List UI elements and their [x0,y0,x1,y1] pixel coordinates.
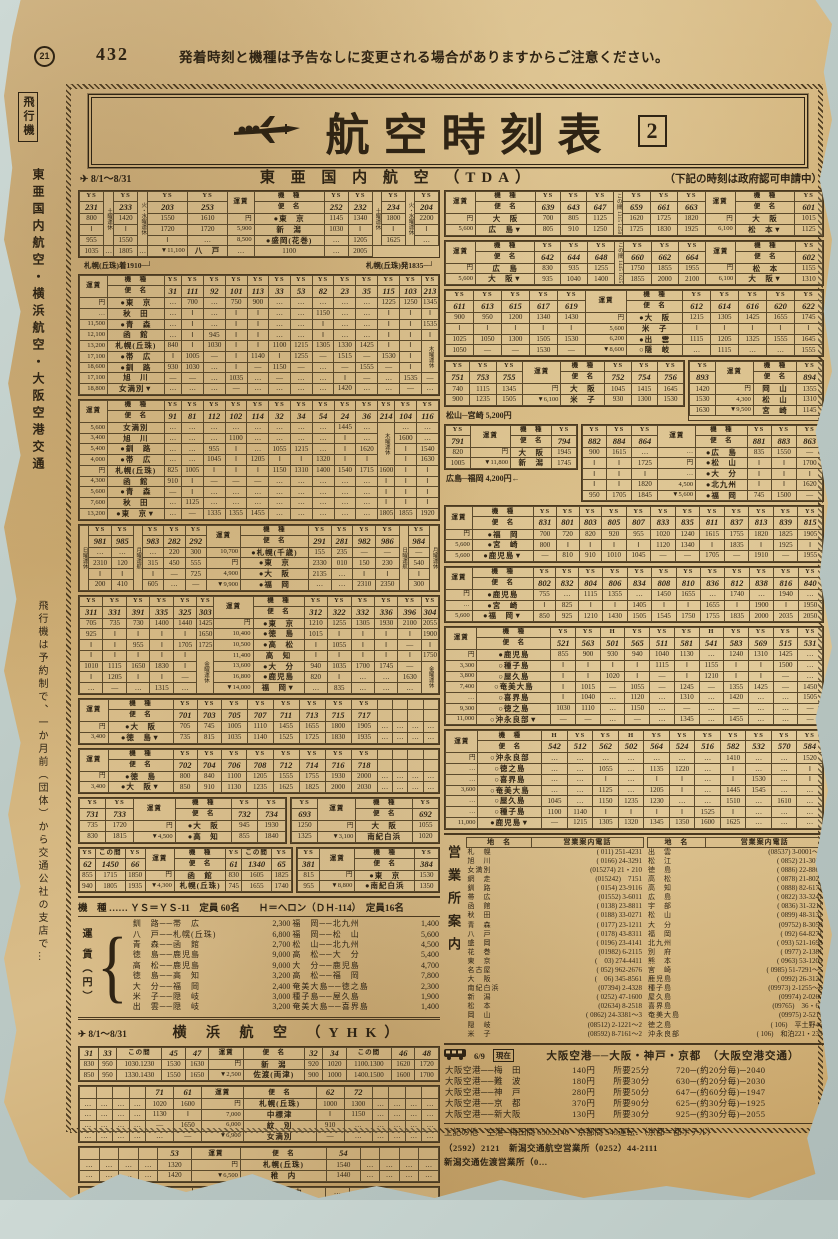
grid-cell: 815 [298,870,320,881]
grid-cell: 函 館 [108,476,164,487]
grid-cell: … [600,703,625,714]
grid-cell: 金曜運休 [197,650,214,693]
grid-cell: 運賃 [446,192,476,214]
grid-cell: 381 [298,858,320,870]
grid-cell: 出 雲──隠 岐 [132,1002,261,1012]
grid-cell: ‖ [749,540,774,551]
grid-cell: … [600,693,625,704]
fare-brace: { [97,930,128,1002]
grid-cell: 304 [422,606,439,618]
grid-cell: ●徳 島 [108,771,173,782]
grid-cell: この間 [95,848,125,858]
grid-cell: 808 [652,577,676,589]
grid-cell: YS [567,731,593,741]
grid-cell: ‖ [674,660,699,671]
grid-cell: 4,900 [206,569,240,580]
grid-cell: 825 [556,600,579,611]
grid-cell: ▼8,800 [320,881,355,892]
grid-cell: YS [739,291,767,301]
grid-cell: 531 [798,638,823,650]
grid-cell: ▼2,500 [209,1070,244,1081]
grid-cell: 813 [749,517,774,529]
grid-cell: 700 [534,529,557,540]
grid-cell: 13,600 [214,661,253,672]
page-corner-badge: 21 [34,46,55,67]
grid-cell: — [534,551,557,562]
tda-airline-name: 東 亜 国 内 航 空 （TDA） [145,166,650,187]
grid-cell: 女満別 [108,422,164,433]
grid-cell: 女満別 [243,1131,316,1142]
grid-cell: … [334,330,356,341]
grid-cell: 1355 [603,589,627,600]
grid-cell: 850 [80,1070,99,1081]
grid-cell: 高 松──大 分 [291,950,409,960]
grid-cell: 1540 [327,1160,360,1171]
grid-cell: 1940 [774,589,798,600]
grid-cell: 運賃 [585,291,626,313]
grid-cell: ( 0963) 53-1205 [706,957,824,966]
grid-cell: 旭 川 [108,373,165,384]
grid-cell: … [378,373,400,384]
grid-cell: 2330 [308,558,331,569]
grid-cell: 1855 [395,508,417,519]
grid-cell: 648 [587,251,614,263]
grid-cell: 2100 [678,274,705,285]
grid-cell: 1015 [576,682,601,693]
grid-cell: ( 011) 251-4231 [532,847,643,857]
grid-cell: ‖ [551,682,576,693]
grid-cell: ‖ [417,465,439,476]
grid-cell: 大 分 [647,921,706,930]
grid-cell: 1100 [542,807,568,818]
grid-cell: 1120 [625,693,650,704]
grid-cell: (07394) 2-4328 [532,984,643,993]
grid-cell: … [129,1099,146,1110]
grid-cell: 1020 [323,1059,346,1070]
grid-cell: YS [417,400,439,410]
grid-cell: YS [795,241,822,251]
grid-cell [423,709,438,721]
grid-cell: … [312,362,334,373]
grid-cell: 7,600 [80,498,108,509]
timetable-grid: YSYSYS運賃機 種YSYSYS751753755便 名75275475674… [445,361,684,406]
grid-cell: 1625 [720,817,746,828]
grid-cell: 820 [579,529,602,540]
grid-cell: YS [724,628,749,638]
grid-cell: 稚 内 [240,1171,326,1182]
grid-cell: 910 [561,224,586,235]
grid-cell: 410 [112,579,133,590]
grid-cell: 1845 [632,490,658,501]
grid-cell: 701 [173,709,197,721]
grid-cell: ( 0836) 31-3211 [706,902,824,911]
grid-cell: 旭 川 [467,857,532,866]
grid-cell: … [398,683,422,694]
grid-cell: 2050 [798,611,822,622]
grid-cell: … [372,1099,389,1110]
grid-cell: YS [529,291,557,301]
grid-cell: … [80,1099,97,1110]
grid-cell: … [618,764,644,775]
grid-cell: … [771,817,797,828]
grid-cell: YS [89,525,112,535]
grid-cell: YS [312,276,334,286]
grid-cell: 900 [247,298,269,309]
grid-cell: 280円 [571,1087,612,1098]
grid-cell: 運賃 [446,731,478,753]
grid-cell: ‖ [378,308,400,319]
grid-cell: … [269,476,291,487]
grid-cell: YS [226,848,242,858]
grid-cell: ●大 阪▼ [108,782,173,793]
grid-cell: 1,900 [410,992,440,1002]
grid-cell: 751 [446,372,470,384]
grid-cell: ‖ [501,323,529,334]
grid-cell: YS [334,400,356,410]
grid-cell: YS [400,276,422,286]
grid-cell: 1155 [699,660,724,671]
grid-cell: … [187,235,227,246]
grid-cell: ●札幌(千歳) [241,547,308,558]
grid-cell: YS [80,799,106,809]
grid-cell: 円 [705,214,735,225]
grid-cell: … [203,373,225,384]
grid-cell: ●東 京▼ [108,508,164,519]
grid-cell: ●釧 路 [108,362,165,373]
grid-cell: 705 [221,709,247,721]
grid-cell: 1530 [162,1059,185,1070]
grid-cell: ‖ [603,600,627,611]
grid-cell: 883 [771,435,797,447]
grid-cell: (09974) 2-0260 [706,993,824,1002]
grid-cell: YS [290,276,312,286]
grid-cell: ‖ [80,672,103,683]
grid-cell: 910 [579,551,602,562]
grid-cell: ‖ [334,433,356,444]
grid-cell: — [551,714,576,725]
grid-cell: … [225,498,247,509]
grid-cell: — [773,671,798,682]
grid-cell: ‖ [181,487,203,498]
grid-cell: ( 03) 274-4411 [532,957,643,966]
grid-cell: 1030 [324,224,348,235]
grid-cell: 1,400 [410,1002,440,1012]
grid-cell: 692 [412,809,438,821]
grid-cell: ‖ [395,498,417,509]
grid-cell: 986 [376,535,399,547]
grid-cell: 1450 [798,682,823,693]
grid-cell: … [356,487,378,498]
grid-cell: 1550 [148,214,188,225]
grid-cell: 便 名 [511,435,552,447]
grid-cell: ‖ [304,640,327,651]
grid-cell: ‖ [247,308,269,319]
grid-cell: … [650,703,675,714]
grid-cell: YS [676,567,700,577]
grid-cell: YS [273,749,299,759]
grid-cell: … [695,774,721,785]
grid-cell: 1905 [351,722,377,733]
grid-cell: ‖ [395,476,417,487]
grid-cell: ‖ [89,569,112,580]
grid-cell: 1420 [724,693,749,704]
grid-cell: YS [773,628,798,638]
grid-cell: ‖ [422,640,439,651]
grid-cell: ( 0154) 23-9116 [532,884,643,893]
grid-cell: ‖ [334,455,356,466]
grid-cell: 512 [567,741,593,753]
grid-cell: 5,600 [446,274,476,285]
grid-cell: 1315 [150,683,173,694]
grid-cell: … [269,487,291,498]
grid-cell: 1740 [725,589,749,600]
grid-cell: 便 名 [175,809,231,821]
grid-cell [399,1148,419,1160]
grid-cell: 1835 [724,540,749,551]
grid-cell: 1625 [381,235,405,246]
grid-cell: 130円 [571,1109,612,1120]
grid-cell: 6,000 [202,1120,243,1131]
grid-cell: 1300 [344,1099,372,1110]
grid-cell: YS [678,241,705,251]
grid-cell: 4,700 [410,961,440,971]
grid-cell: YS [308,525,331,535]
grid-cell: … [312,498,334,509]
grid-cell: — [724,703,749,714]
grid-cell: 720─(約20分毎)─2040 [675,1065,824,1076]
grid-cell: 金曜運休 [422,661,439,693]
grid-cell: ○屋久島 [477,671,551,682]
grid-cell: 36 [356,410,378,422]
grid-cell: … [247,444,269,455]
grid-cell: ○種子島 [478,807,542,818]
grid-cell: ‖ [700,540,725,551]
grid-cell: 円 [715,384,753,395]
grid-cell: 1035 [221,732,247,743]
grid-cell: ‖ [150,650,173,661]
grid-cell: 運賃 [446,507,473,529]
grid-cell: 805 [535,224,560,235]
grid-cell: 円 [446,263,476,274]
grid-cell: 830 [226,870,242,881]
grid-cell: 便 名 [736,251,795,263]
grid-cell: 1340 [529,313,557,324]
grid-cell: … [181,422,203,433]
grid-cell: 盛 岡 [467,939,532,948]
grid-cell: YS [225,276,247,286]
grid-cell: … [567,785,593,796]
grid-cell: YS [299,749,325,759]
grid-cell: YS [142,525,163,535]
grid-cell: ‖ [247,341,269,352]
grid-cell: YS [625,628,650,638]
grid-cell: … [290,373,312,384]
grid-cell: 日曜運休 [80,525,89,590]
grid-cell: 旭 川 [108,433,164,444]
grid-cell: YS [446,291,474,301]
grid-cell: ‖ [126,650,149,661]
grid-cell: … [797,796,823,807]
grid-cell: 機 種 [472,567,533,577]
grid-cell: 830 [80,1059,99,1070]
grid-cell: … [203,422,225,433]
timetable-content: YS土曜運休YS火・水曜運休YSYS運賃機 種YSYS土曜運休YS火・水曜運休Y… [78,190,824,1239]
grid-cell: … [419,1171,439,1182]
airport-bus-footnote: 上記の他 空港─梅田間 650.2140 京都間 545運転．（京都＝都ホテル） [444,1123,824,1140]
grid-cell: 火・水曜運休 [138,192,148,246]
grid-cell: 1750 [422,650,439,661]
grid-cell: 707 [247,709,273,721]
grid-cell: 4,300 [715,394,753,405]
grid-cell: 1135 [644,764,670,775]
grid-cell: 1125 [181,498,203,509]
grid-cell: 34 [323,1047,346,1059]
grid-cell: 396 [398,606,422,618]
grid-cell: 834 [627,577,651,589]
office-directory-label: 営業所案内 [444,837,463,1039]
grid-cell: 1300 [501,334,529,345]
grid-cell: 615 [501,301,529,313]
grid-cell: … [312,298,334,309]
grid-cell: 函 館 [108,330,165,341]
grid-cell: … [96,1110,113,1121]
grid-cell: ●出 雲 [627,334,683,345]
grid-cell: 1355 [724,682,749,693]
grid-cell: YS [325,749,351,759]
grid-cell: 1530 [557,334,585,345]
grid-cell: 福 岡──松 山 [291,930,409,940]
grid-cell: … [312,476,334,487]
grid-cell: 宇 部 [647,902,706,911]
grid-cell: … [375,683,398,694]
grid-cell: 1820 [632,479,658,490]
grid-cell: 1550 [162,1070,185,1081]
grid-cell: ‖ [576,671,601,682]
grid-cell: ‖ [644,774,670,785]
grid-cell: ‖ [606,469,632,480]
grid-cell: 円 [318,821,356,832]
timetable-grid: 3133この間4547運賃便 名3234この間46488309501030.12… [79,1047,439,1082]
grid-cell: … [773,703,798,714]
grid-cell: 1700 [797,458,823,469]
grid-cell: … [739,345,767,356]
grid-cell: ‖ [400,330,422,341]
grid-cell: 850 [533,611,556,622]
grid-cell: 1850 [125,870,145,881]
grid-cell: ‖ [269,351,291,362]
row-yonago-okayama: YSYSYS運賃機 種YSYSYS751753755便 名75275475674… [444,360,824,424]
grid-cell: YS [126,596,149,606]
grid-cell: ●宮 崎 [472,540,533,551]
grid-cell: 1720 [187,224,227,235]
grid-cell: ( 0977) 2-1381 [706,948,824,957]
grid-cell: 松 本▼ [735,224,795,235]
grid-cell: 756 [657,372,683,384]
grid-cell: 281 [331,535,352,547]
grid-cell: 便 名 [735,202,795,214]
grid-cell: 釧 路──帯 広 [132,919,261,929]
grid-cell: … [650,693,675,704]
grid-cell: ‖ [225,455,247,466]
grid-cell: 570 [771,741,797,753]
grid-cell: YS [578,567,602,577]
grid-cell: 66 [125,858,145,870]
grid-cell: … [372,1131,389,1142]
grid-cell: YS [593,731,619,741]
tda-table-osaka-izumo-oki: YSYSYSYSYS運賃機 種YSYSYSYSYS611613615617619… [444,289,824,357]
grid-cell: … [113,1120,130,1131]
grid-cell: YS [576,628,601,638]
grid-cell: 1910 [749,551,774,562]
volume-badge: 2 [638,115,667,147]
grid-cell: YS [496,362,522,372]
grid-cell: 運賃 [145,848,174,870]
grid-cell: — [773,551,798,562]
grid-cell: 1505 [798,693,823,704]
grid-cell: … [600,714,625,725]
grid-cell: 1150 [625,703,650,714]
grid-cell: ( 0886) 22-8866 [706,866,824,875]
grid-cell: 45 [162,1047,185,1059]
grid-cell: ‖ [669,785,695,796]
grid-cell: ‖ [269,455,291,466]
grid-cell: H [699,628,724,638]
grid-cell: 円 [206,558,240,569]
grid-cell: 1030 [203,341,225,352]
grid-cell: ‖ [225,444,247,455]
grid-cell: … [142,547,163,558]
grid-cell: … [203,384,225,395]
grid-cell: 円 [80,298,108,309]
timetable-grid: 釧 路──帯 広2,300福 岡──北九州1,400八 戸──札幌(丘珠)6,8… [132,919,440,1013]
grid-cell: YS [606,425,632,435]
grid-cell: ‖ [378,476,395,487]
grid-cell: 便 名 [254,202,324,214]
grid-cell: ●帯 広 [108,351,165,362]
grid-cell: 662 [651,251,678,263]
grid-cell: YS [535,192,560,202]
grid-cell: 541 [699,638,724,650]
grid-cell: YS [669,731,695,741]
grid-cell: ( 093) 521-1698 [706,939,824,948]
grid-cell: — [185,579,206,590]
grid-cell: 円 [191,1160,240,1171]
grid-cell: 54 [327,1148,360,1160]
grid-cell: 便 名 [108,709,173,721]
grid-cell: 宮 崎 [647,966,706,975]
grid-cell: ●鹿児島 [477,650,551,661]
grid-cell: 1530 [415,870,439,881]
grid-cell: 1030.1230 [117,1059,162,1070]
grid-cell: 555 [185,558,206,569]
grid-cell: 835 [328,683,351,694]
grid-cell [119,1148,139,1160]
grid-cell: 564 [644,741,670,753]
grid-cell: 940 [80,881,96,892]
grid-cell: … [164,422,181,433]
grid-cell: 800 [173,771,197,782]
grid-cell: YS [602,507,627,517]
grid-cell [96,1087,113,1099]
grid-cell: 984 [408,535,430,547]
grid-cell: 1150 [312,308,334,319]
grid-cell: 1130 [221,782,247,793]
grid-cell: 1205 [247,455,269,466]
grid-cell: … [422,1110,439,1121]
grid-cell: 1115 [650,660,675,671]
grid-cell: 1725 [632,458,658,469]
grid-cell: 高 松──鹿児島 [132,961,261,971]
